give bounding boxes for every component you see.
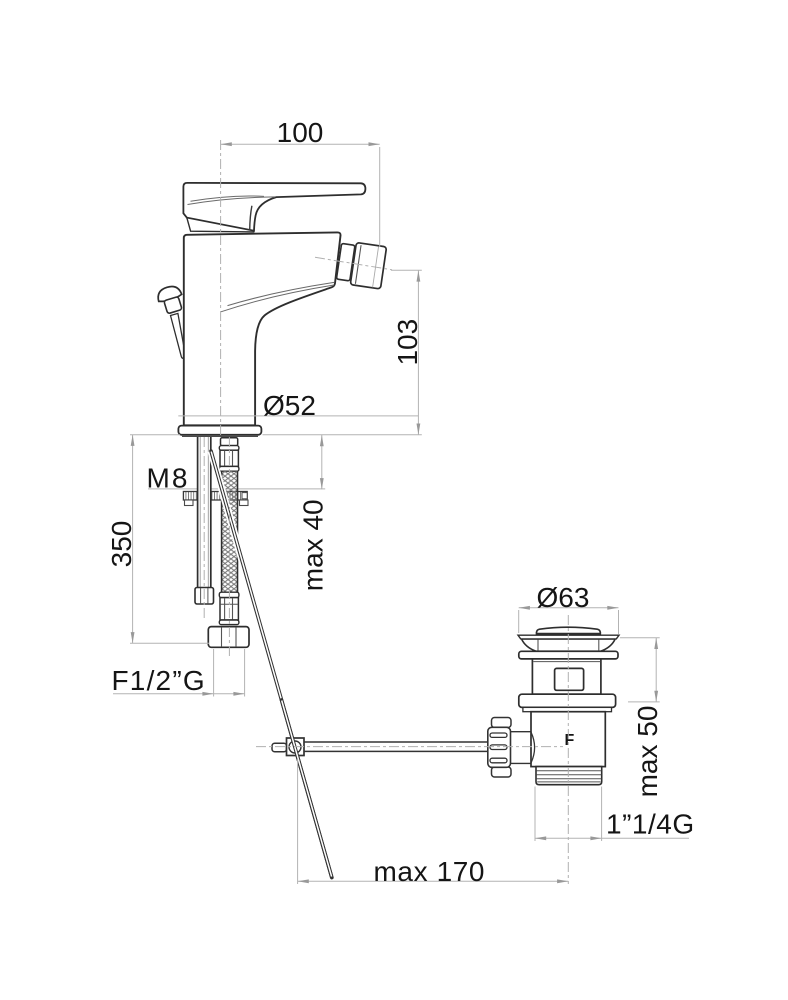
svg-text:100: 100	[277, 117, 324, 148]
svg-text:103: 103	[392, 319, 423, 366]
svg-text:Ø63: Ø63	[537, 582, 590, 613]
svg-text:1”1/4G: 1”1/4G	[606, 809, 695, 840]
svg-text:max 50: max 50	[632, 706, 663, 798]
svg-text:F: F	[565, 732, 575, 749]
svg-text:M8: M8	[147, 463, 190, 494]
svg-text:Ø52: Ø52	[263, 390, 316, 421]
svg-text:max 40: max 40	[297, 499, 328, 591]
svg-text:350: 350	[106, 521, 137, 568]
svg-text:max 170: max 170	[374, 856, 486, 887]
svg-text:F1/2”G: F1/2”G	[112, 665, 206, 696]
